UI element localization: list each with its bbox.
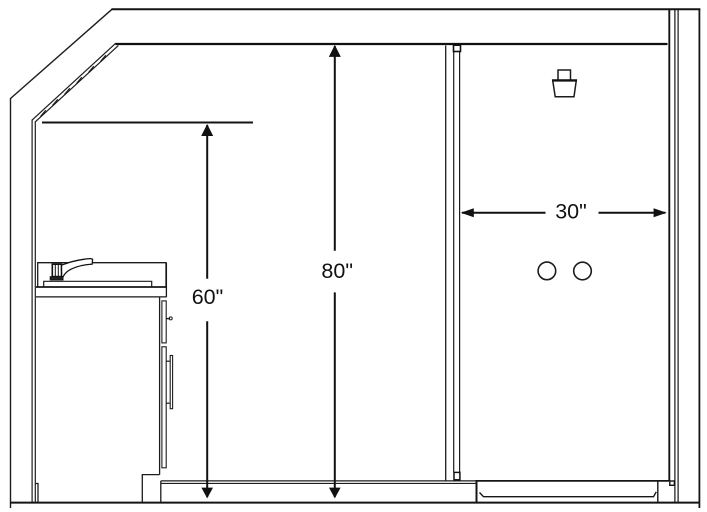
svg-text:30": 30" [555,200,587,224]
svg-text:60": 60" [192,285,224,309]
svg-text:80": 80" [321,259,353,283]
